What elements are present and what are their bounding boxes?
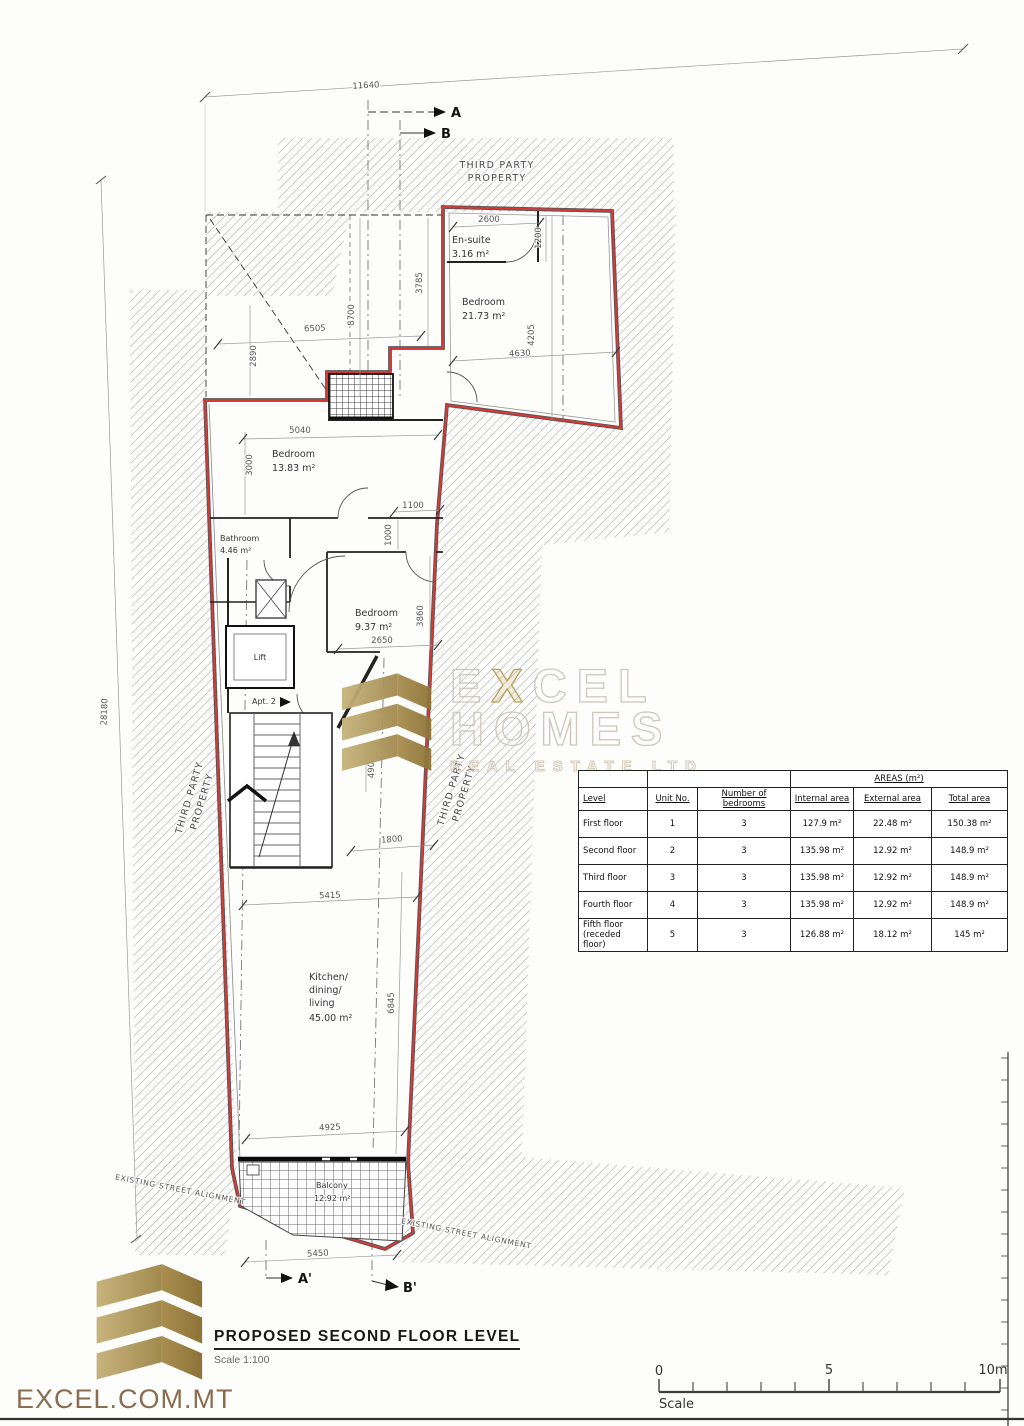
logo-stripes	[97, 1264, 203, 1379]
cell-bedrooms: 3	[698, 919, 791, 952]
brand-url: EXCEL.COM.MT	[16, 1384, 234, 1415]
section-a-arrow-icon	[434, 107, 446, 117]
cell-external: 12.92 m²	[854, 892, 932, 919]
room-label-bedroom-3: Bedroom	[355, 608, 398, 619]
watermark-word-homes: HOMES	[450, 707, 704, 750]
dim-2650: 2650	[371, 636, 393, 646]
room-area-ensuite: 3.16 m²	[452, 249, 489, 260]
room-area-bedroom-2: 13.83 m²	[272, 463, 315, 474]
dim-4925: 4925	[319, 1123, 341, 1134]
cell-unit: 5	[648, 919, 698, 952]
dim-2600: 2600	[478, 215, 500, 225]
cell-level: Third floor	[579, 865, 648, 892]
cell-level: Fourth floor	[579, 892, 648, 919]
rainwater-pipe-box	[247, 1165, 259, 1175]
cell-level: Fifth floor (receded floor)	[579, 919, 648, 952]
table-row: First floor 1 3 127.9 m² 22.48 m² 150.38…	[579, 811, 1008, 838]
room-label-kitchen-2: dining/	[309, 985, 342, 996]
col-header-external: External area	[854, 788, 932, 811]
dim-5450: 5450	[307, 1248, 329, 1259]
drawing-scale-note: Scale 1:100	[214, 1354, 520, 1366]
excel-homes-logo-icon	[342, 670, 434, 778]
table-row: Third floor 3 3 135.98 m² 12.92 m² 148.9…	[579, 865, 1008, 892]
service-shaft	[329, 374, 393, 418]
cell-total: 145 m²	[932, 919, 1008, 952]
watermark-text: EXCEL HOMES REAL ESTATE LTD	[450, 664, 704, 778]
dim-2890: 2890	[249, 345, 259, 367]
third-party-top-line1: THIRD PARTY	[458, 160, 534, 171]
lift-shaft	[226, 580, 294, 688]
cell-bedrooms: 3	[698, 865, 791, 892]
cell-level: Second floor	[579, 838, 648, 865]
cell-unit: 2	[648, 838, 698, 865]
cell-total: 148.9 m²	[932, 838, 1008, 865]
cell-total: 150.38 m²	[932, 811, 1008, 838]
section-a-label: A	[451, 106, 461, 121]
table-areas-group-header: AREAS (m²)	[791, 771, 1008, 788]
dim-11640: 11640	[352, 80, 380, 91]
section-b-label: B	[441, 127, 451, 142]
cell-unit: 3	[648, 865, 698, 892]
table-spacer-cell	[648, 771, 791, 788]
watermark-word-excel: EXCEL	[450, 664, 704, 707]
scale-bar-label: Scale	[659, 1397, 694, 1412]
section-a2-label: A'	[298, 1272, 312, 1287]
dim-5415: 5415	[319, 891, 341, 902]
cell-bedrooms: 3	[698, 811, 791, 838]
cell-unit: 4	[648, 892, 698, 919]
dim-1200: 1200	[534, 227, 544, 249]
table-row: Fourth floor 4 3 135.98 m² 12.92 m² 148.…	[579, 892, 1008, 919]
cell-total: 148.9 m²	[932, 892, 1008, 919]
section-b-arrow-icon	[424, 128, 436, 138]
col-header-internal: Internal area	[791, 788, 854, 811]
room-label-bedroom-2: Bedroom	[272, 449, 315, 460]
dim-6845: 6845	[387, 992, 397, 1014]
areas-table: AREAS (m²) Level Unit No. Number of bedr…	[578, 770, 1008, 952]
table-spacer-cell	[579, 771, 648, 788]
section-b2-label: B'	[403, 1281, 417, 1296]
col-header-unit: Unit No.	[648, 788, 698, 811]
col-header-bedrooms: Number of bedrooms	[698, 788, 791, 811]
room-area-bathroom: 4.46 m²	[220, 546, 251, 555]
logo-stripes	[342, 673, 431, 771]
excel-footer-logo-icon	[93, 1262, 209, 1386]
dim-28180: 28180	[100, 698, 111, 725]
cell-external: 18.12 m²	[854, 919, 932, 952]
scale-tick-0: 0	[655, 1364, 663, 1379]
room-label-balcony: Balcony	[316, 1181, 348, 1190]
room-area-bedroom-1: 21.73 m²	[462, 311, 505, 322]
cell-unit: 1	[648, 811, 698, 838]
cell-internal: 126.88 m²	[791, 919, 854, 952]
room-label-bedroom-1: Bedroom	[462, 297, 505, 308]
cell-external: 22.48 m²	[854, 811, 932, 838]
dim-3785: 3785	[415, 272, 425, 294]
section-b2-arrow-icon	[385, 1279, 399, 1291]
col-header-level: Level	[579, 788, 648, 811]
apartment-label: Apt. 2	[252, 697, 276, 706]
apartment-entry-arrow-icon	[280, 697, 291, 707]
drawing-sheet: 11640 28180 2600 1200 3785 8700 6505 289…	[0, 0, 1024, 1426]
table-row: Fifth floor (receded floor) 5 3 126.88 m…	[579, 919, 1008, 952]
dim-1100: 1100	[402, 501, 424, 511]
cell-bedrooms: 3	[698, 838, 791, 865]
dim-1000: 1000	[384, 524, 394, 546]
room-area-bedroom-3: 9.37 m²	[355, 622, 392, 633]
third-party-top-line2: PROPERTY	[468, 173, 527, 184]
dim-5040: 5040	[289, 426, 311, 436]
dim-3000: 3000	[245, 454, 255, 476]
room-area-kitchen: 45.00 m²	[309, 1013, 352, 1024]
room-label-bathroom: Bathroom	[220, 534, 260, 543]
room-label-ensuite: En-suite	[452, 235, 491, 246]
staircase	[228, 713, 332, 867]
watermark: EXCEL HOMES REAL ESTATE LTD	[342, 664, 704, 778]
dim-8700: 8700	[347, 304, 357, 326]
col-header-total: Total area	[932, 788, 1008, 811]
room-area-balcony: 12.92 m²	[314, 1194, 350, 1203]
drawing-title: PROPOSED SECOND FLOOR LEVEL	[214, 1328, 520, 1350]
room-label-lift: Lift	[254, 653, 267, 662]
scale-bar: 0 5 10m Scale	[655, 1363, 1008, 1412]
room-label-kitchen-1: Kitchen/	[309, 972, 349, 983]
dim-4630: 4630	[509, 348, 531, 359]
cell-internal: 135.98 m²	[791, 892, 854, 919]
room-label-kitchen-3: living	[309, 998, 335, 1009]
section-a2-arrow-icon	[281, 1273, 293, 1283]
dim-3860: 3860	[416, 605, 426, 627]
cell-level: First floor	[579, 811, 648, 838]
cell-internal: 135.98 m²	[791, 838, 854, 865]
cell-total: 148.9 m²	[932, 865, 1008, 892]
cell-external: 12.92 m²	[854, 838, 932, 865]
scale-tick-5: 5	[825, 1363, 833, 1378]
cell-internal: 127.9 m²	[791, 811, 854, 838]
cell-external: 12.92 m²	[854, 865, 932, 892]
dim-6505: 6505	[304, 324, 326, 335]
cell-internal: 135.98 m²	[791, 865, 854, 892]
dim-4205: 4205	[527, 324, 537, 346]
table-row: Second floor 2 3 135.98 m² 12.92 m² 148.…	[579, 838, 1008, 865]
drawing-title-block: PROPOSED SECOND FLOOR LEVEL Scale 1:100	[214, 1328, 520, 1366]
cell-bedrooms: 3	[698, 892, 791, 919]
scale-tick-10m: 10m	[978, 1363, 1007, 1378]
dim-1800: 1800	[381, 834, 403, 845]
